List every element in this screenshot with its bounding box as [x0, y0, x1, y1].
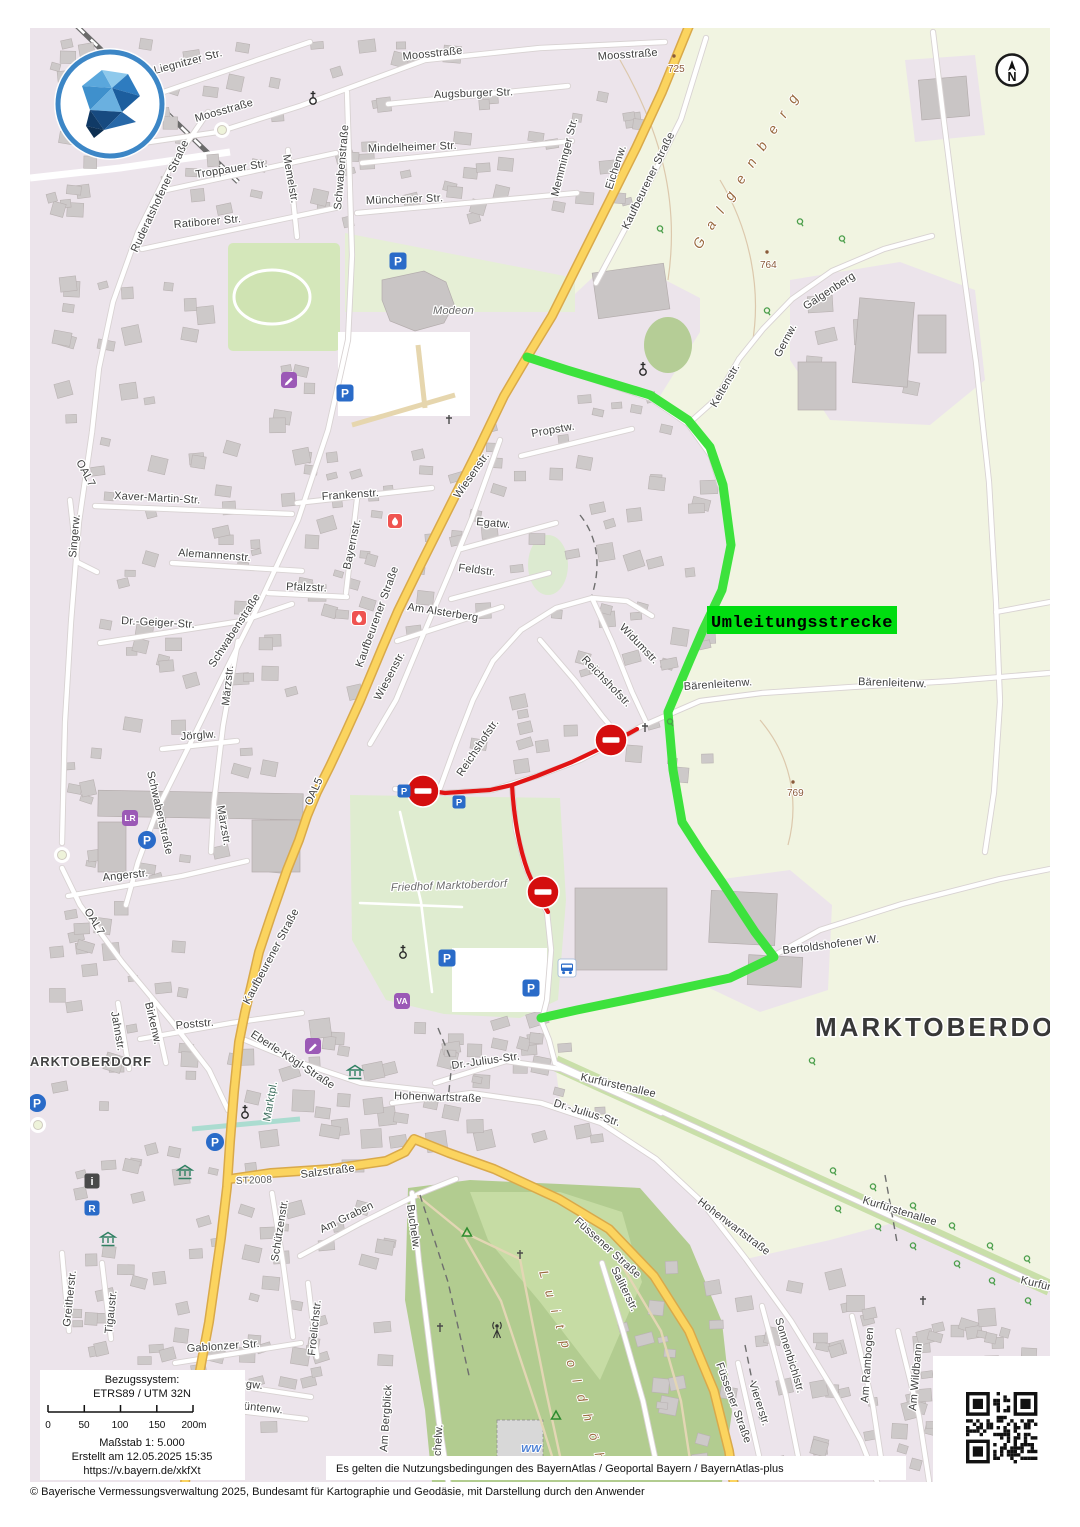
building: [91, 748, 102, 759]
water-label-ww: WW: [521, 1443, 542, 1455]
building: [576, 455, 593, 470]
building: [891, 1423, 907, 1439]
scale-tick: 200m: [181, 1420, 206, 1431]
bus-stop-icon: [558, 959, 576, 977]
scale-tick: 50: [78, 1420, 90, 1431]
detour-route-label: Umleitungsstrecke: [707, 606, 897, 634]
svg-text:P: P: [341, 387, 349, 401]
building: [189, 1249, 203, 1259]
hydrant-icon: [352, 611, 367, 626]
building: [419, 466, 433, 475]
building: [119, 382, 138, 400]
building: [125, 570, 136, 576]
city-label-marktoberdorf: MARKTOBERDORF: [815, 1012, 1080, 1042]
hydrant-icon: [388, 514, 403, 529]
elevation-label-769: 769: [787, 788, 804, 799]
svg-text:Umleitungsstrecke: Umleitungsstrecke: [711, 614, 893, 633]
building: [326, 452, 338, 463]
no-entry-sign: [595, 724, 627, 756]
building: [445, 1050, 456, 1057]
building: [735, 1296, 754, 1312]
svg-text:P: P: [143, 834, 151, 848]
building: [123, 717, 143, 733]
parking-icon: P: [453, 796, 466, 809]
parking-icon: P: [398, 785, 411, 798]
scale-panel: Bezugssystem: ETRS89 / UTM 32N 0 50 100 …: [40, 1370, 245, 1480]
building: [630, 612, 642, 620]
parking-icon: P: [390, 253, 407, 270]
building: [184, 298, 196, 311]
svg-text:i: i: [90, 1176, 93, 1188]
building: [564, 725, 578, 736]
building: [167, 1146, 181, 1158]
elevation-label-725: 725: [668, 64, 685, 75]
building: [393, 1112, 408, 1123]
building: [535, 740, 549, 753]
building: [262, 1276, 280, 1290]
building: [144, 397, 155, 405]
roundabout: [214, 122, 230, 138]
street-label-pfalzstr: Pfalzstr.: [286, 581, 327, 594]
svg-text:P: P: [401, 787, 408, 798]
building: [322, 1036, 336, 1050]
building: [66, 185, 81, 195]
building: [177, 987, 188, 998]
building: [709, 1320, 723, 1329]
building: [550, 468, 563, 480]
svg-text:P: P: [211, 1136, 219, 1150]
building: [260, 760, 278, 777]
building: [921, 1371, 933, 1379]
parking-icon: P: [337, 385, 354, 402]
building: [446, 186, 462, 199]
no-entry-sign: [407, 775, 439, 807]
building: [186, 1071, 196, 1079]
svg-text:P: P: [33, 1097, 41, 1111]
road-label-st2008: ST2008: [236, 1175, 273, 1187]
building: [262, 666, 279, 680]
building: [73, 1321, 83, 1327]
info-icon: i: [85, 1174, 100, 1189]
building: [688, 503, 704, 513]
copyright-text: © Bayerische Vermessungsverwaltung 2025,…: [30, 1486, 645, 1498]
building: [117, 1264, 134, 1274]
building: [74, 1187, 88, 1201]
school-icon: [305, 1038, 321, 1054]
scale-tick: 100: [112, 1420, 129, 1431]
building: [656, 1402, 668, 1410]
map-export-page: P P P P P P P P P R LR VA i: [0, 0, 1080, 1527]
building: [251, 540, 260, 549]
share-url: https://v.bayern.de/xkfXt: [83, 1465, 200, 1477]
building: [261, 1421, 278, 1432]
building: [52, 330, 72, 347]
building: [292, 447, 311, 465]
building: [181, 327, 199, 342]
building: [514, 471, 525, 481]
building: [463, 167, 478, 179]
building: [813, 1333, 827, 1343]
elevation-label-764: 764: [760, 260, 777, 271]
building: [648, 476, 666, 491]
ref-system-value: ETRS89 / UTM 32N: [93, 1388, 191, 1400]
building: [670, 627, 689, 646]
building: [62, 303, 74, 313]
building: [335, 610, 348, 620]
building: [701, 754, 713, 763]
building: [630, 404, 642, 414]
building: [49, 988, 65, 1002]
svg-text:P: P: [527, 982, 535, 996]
building: [101, 1160, 116, 1170]
building: [292, 1090, 315, 1112]
building: [596, 542, 615, 561]
building: [121, 287, 133, 299]
poi-label-modeon: Modeon: [433, 305, 474, 317]
building: [517, 709, 529, 719]
building: [50, 946, 64, 958]
building: [163, 282, 173, 291]
parking-icon: P: [523, 980, 540, 997]
building: [59, 276, 77, 292]
building: [102, 1245, 116, 1258]
building: [847, 1295, 865, 1311]
parking-icon: P: [138, 831, 156, 849]
building: [159, 660, 174, 673]
building: [281, 365, 292, 373]
building: [309, 1018, 332, 1039]
building: [269, 77, 280, 88]
building: [558, 1043, 572, 1053]
building: [978, 1308, 997, 1327]
building: [375, 1239, 394, 1255]
building: [700, 480, 718, 494]
ref-system-label: Bezugssystem:: [105, 1374, 180, 1386]
building: [1021, 1348, 1037, 1357]
building: [311, 1367, 323, 1378]
north-arrow: N: [997, 55, 1028, 86]
building: [179, 854, 190, 862]
building: [155, 982, 172, 994]
parking-lot: [338, 332, 470, 416]
building: [467, 1119, 484, 1133]
created-timestamp: Erstellt am 12.05.2025 15:35: [72, 1451, 213, 1463]
building: [528, 131, 545, 142]
building: [138, 1357, 152, 1365]
street-label-joerglw: Jörglw.: [180, 729, 216, 743]
bayernatlas-logo: [54, 48, 166, 160]
street-label-baerenleitenw: Bärenleitenw.: [858, 676, 927, 690]
parking-icon: P: [28, 1094, 46, 1112]
building: [476, 163, 490, 173]
building: [363, 1097, 384, 1115]
building: [281, 493, 295, 507]
building: [611, 402, 622, 409]
svg-text:R: R: [88, 1204, 96, 1215]
building: [652, 1378, 670, 1394]
building: [203, 86, 219, 98]
building: [529, 533, 545, 544]
roundabout: [30, 1117, 46, 1133]
building: [529, 1032, 543, 1044]
building: [165, 638, 181, 651]
building: [66, 1000, 83, 1012]
lr-office-icon: LR: [122, 810, 138, 826]
building: [85, 1312, 98, 1325]
building: [396, 42, 406, 49]
no-entry-sign: [527, 876, 559, 908]
building: [999, 1327, 1010, 1338]
svg-text:LR: LR: [124, 813, 135, 823]
building: [139, 38, 153, 50]
building: [552, 201, 566, 213]
parking-icon: P: [206, 1133, 224, 1151]
building: [243, 673, 253, 682]
building: [191, 455, 207, 469]
building: [100, 437, 111, 446]
building: [99, 1101, 108, 1110]
scale-tick: 150: [149, 1420, 166, 1431]
building: [315, 1107, 331, 1119]
building: [597, 91, 609, 102]
svg-text:P: P: [394, 255, 402, 269]
building: [361, 1129, 383, 1149]
parking-icon: P: [439, 950, 456, 967]
building: [79, 780, 96, 797]
roundabout: [54, 847, 70, 863]
va-office-icon: VA: [394, 993, 410, 1009]
building: [82, 964, 98, 977]
building: [152, 1271, 166, 1285]
building: [310, 188, 329, 206]
building: [226, 74, 244, 92]
building: [196, 306, 215, 325]
building: [578, 395, 592, 404]
building: [510, 564, 524, 573]
terms-box: Es gelten die Nutzungsbedingungen des Ba…: [326, 1456, 906, 1480]
building: [126, 1024, 137, 1033]
building: [704, 1279, 722, 1296]
building: [94, 1341, 109, 1356]
svg-text:P: P: [443, 952, 451, 966]
terms-text: Es gelten die Nutzungsbedingungen des Ba…: [336, 1463, 784, 1475]
building: [163, 117, 178, 130]
building: [215, 485, 232, 498]
building: [626, 508, 642, 523]
building: [513, 758, 530, 774]
building: [378, 1355, 393, 1366]
building: [358, 39, 376, 53]
city-label-marktoberdorf-west: MARKTOBERDORF: [18, 1054, 152, 1069]
building: [64, 909, 77, 919]
building: [172, 941, 186, 953]
building: [665, 1261, 678, 1274]
building: [190, 188, 204, 202]
building: [685, 568, 695, 578]
building: [414, 1022, 425, 1033]
svg-text:P: P: [456, 798, 463, 809]
svg-text:VA: VA: [396, 996, 407, 1006]
building: [304, 383, 315, 394]
qr-panel: [933, 1356, 1050, 1482]
building: [259, 1129, 279, 1148]
building: [977, 1330, 987, 1338]
tree-cluster: [644, 317, 692, 373]
building: [625, 745, 642, 763]
building: [371, 510, 382, 518]
building: [337, 1045, 349, 1056]
building: [337, 1093, 350, 1107]
building: [305, 535, 319, 549]
running-track: [234, 270, 310, 324]
building: [104, 492, 114, 501]
scale-value: Maßstab 1: 5.000: [99, 1437, 185, 1449]
building: [173, 1328, 189, 1344]
building: [259, 638, 273, 650]
building: [497, 157, 513, 171]
building: [235, 42, 249, 53]
building: [590, 1134, 603, 1143]
building: [66, 414, 77, 423]
building: [479, 99, 490, 110]
north-letter: N: [1007, 70, 1016, 84]
school-icon: [281, 372, 297, 388]
building: [374, 1321, 392, 1333]
building: [85, 1254, 97, 1266]
map-canvas[interactable]: P P P P P P P P P R LR VA i: [0, 0, 1080, 1527]
building: [99, 619, 112, 630]
building: [74, 923, 90, 935]
building: [176, 1301, 190, 1315]
building: [240, 748, 252, 756]
building: [121, 324, 142, 345]
townhall-icon: R: [85, 1201, 100, 1216]
building: [270, 418, 286, 433]
scale-tick: 0: [45, 1420, 51, 1431]
building: [574, 1123, 591, 1139]
